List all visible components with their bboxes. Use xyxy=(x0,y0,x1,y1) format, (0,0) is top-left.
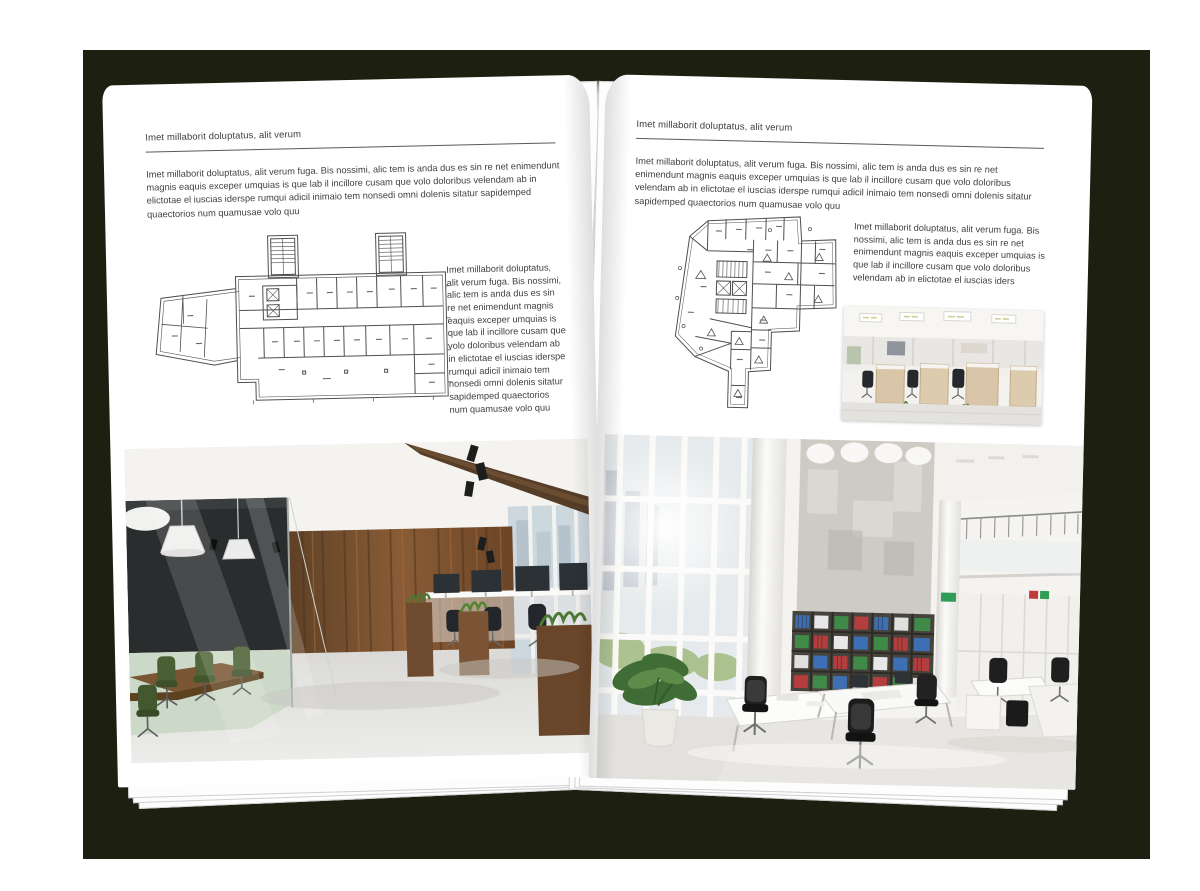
office-photo-illustration xyxy=(596,434,1083,790)
left-page-header: Imet millaborit doluptatus, alit verum xyxy=(145,129,301,144)
magazine-spread-mockup: Imet millaborit doluptatus, alit verum I… xyxy=(0,0,1200,891)
right-page-header: Imet millaborit doluptatus, alit verum xyxy=(636,119,792,134)
left-page: Imet millaborit doluptatus, alit verum I… xyxy=(102,75,605,788)
floor-plan-drawing xyxy=(645,207,847,419)
office-photo-illustration xyxy=(124,439,594,763)
right-header-rule xyxy=(636,138,1044,149)
right-office-photo xyxy=(596,434,1083,790)
right-floor-plan-figure xyxy=(645,207,847,419)
left-office-photo xyxy=(124,439,594,763)
left-floor-plan-figure xyxy=(149,226,455,425)
right-small-office-photo xyxy=(841,306,1044,425)
left-floor-plan-caption: Imet millaborit doluptatus, alit verum f… xyxy=(446,261,567,416)
office-photo-illustration xyxy=(841,306,1044,425)
left-intro-paragraph: Imet millaborit doluptatus, alit verum f… xyxy=(146,159,561,221)
right-page: Imet millaborit doluptatus, alit verum I… xyxy=(588,74,1092,790)
left-header-rule xyxy=(146,142,556,152)
right-floor-plan-caption: Imet millaborit doluptatus, alit verum f… xyxy=(853,220,1052,288)
floor-plan-drawing xyxy=(149,226,455,425)
